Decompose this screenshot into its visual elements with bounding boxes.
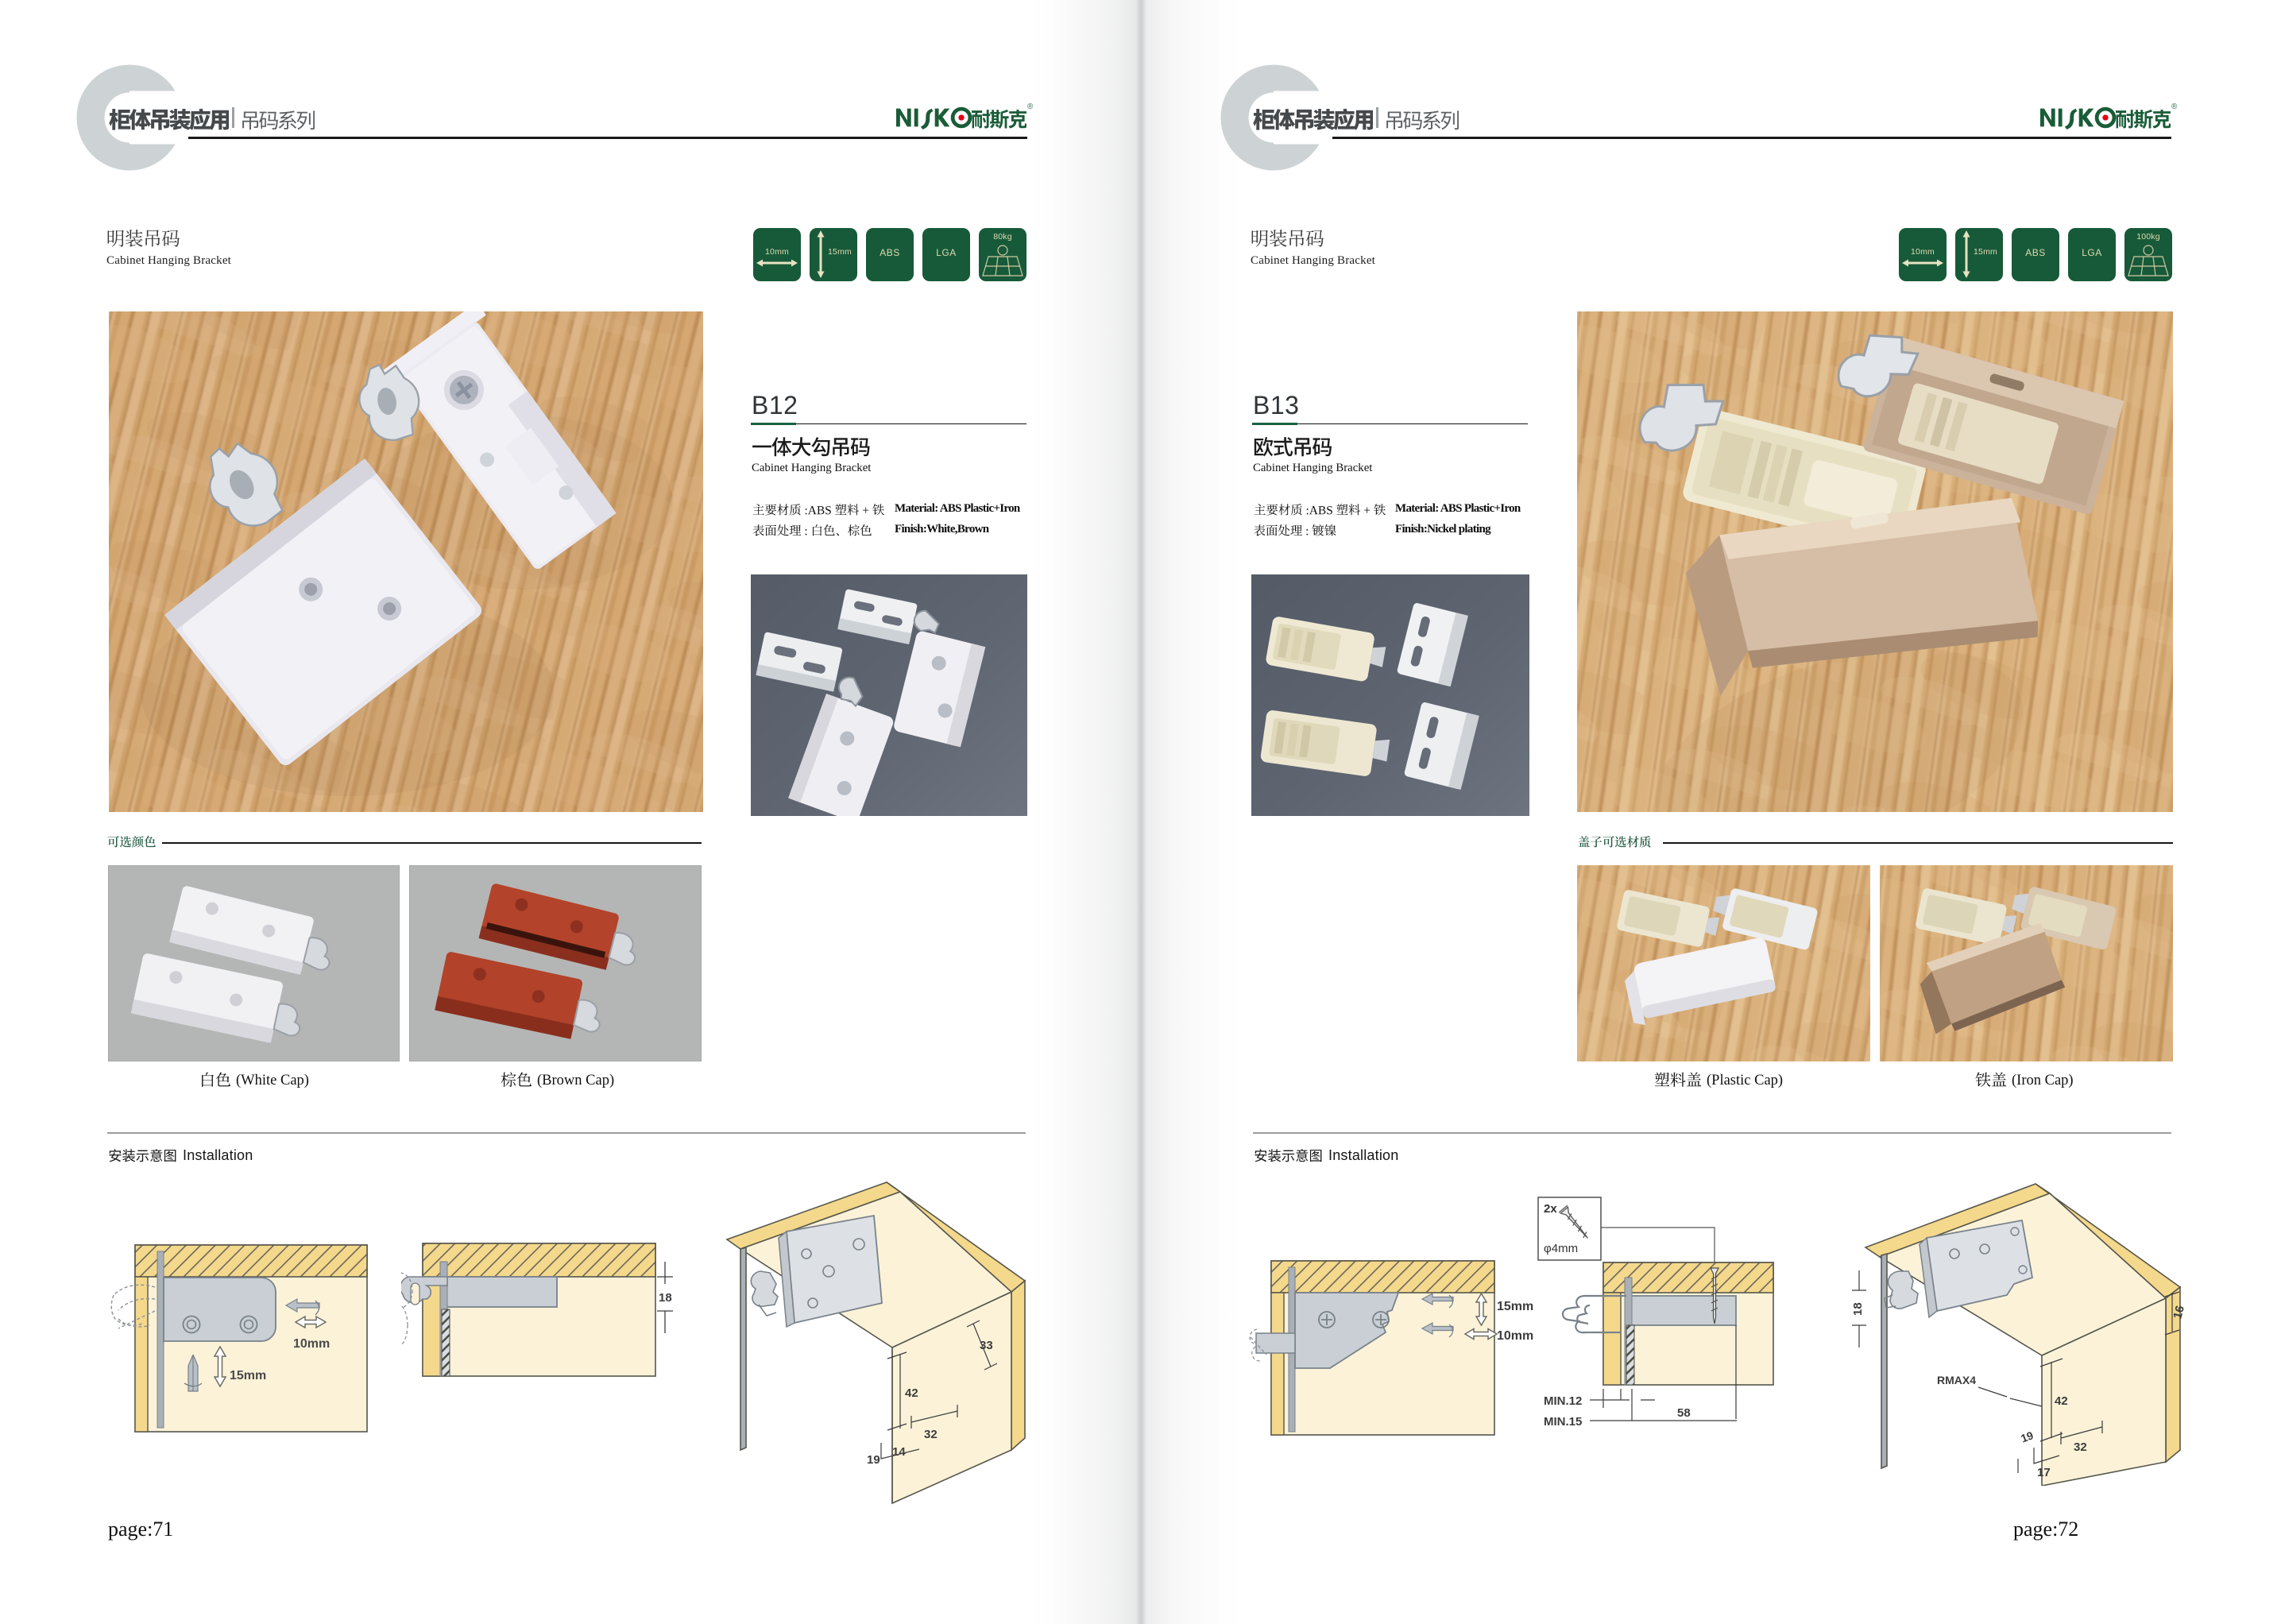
- svg-text:58: 58: [1677, 1406, 1691, 1420]
- svg-text:10mm: 10mm: [293, 1337, 330, 1351]
- svg-text:16: 16: [2171, 1304, 2187, 1320]
- svg-text:MIN.12: MIN.12: [1544, 1394, 1582, 1408]
- svg-text:42: 42: [2055, 1394, 2068, 1408]
- svg-text:14: 14: [892, 1445, 906, 1459]
- svg-text:RMAX4: RMAX4: [1937, 1374, 1976, 1386]
- svg-text:19: 19: [867, 1453, 880, 1467]
- svg-text:32: 32: [2074, 1440, 2087, 1454]
- svg-text:19: 19: [2019, 1429, 2035, 1444]
- svg-text:17: 17: [2037, 1466, 2051, 1479]
- svg-text:10mm: 10mm: [1497, 1329, 1533, 1343]
- svg-text:φ4mm: φ4mm: [1544, 1242, 1578, 1255]
- svg-text:15mm: 15mm: [1497, 1300, 1533, 1313]
- svg-text:42: 42: [905, 1386, 918, 1400]
- svg-text:32: 32: [924, 1428, 938, 1441]
- svg-text:33: 33: [980, 1339, 993, 1352]
- svg-text:MIN.15: MIN.15: [1544, 1415, 1582, 1429]
- svg-text:2x: 2x: [1544, 1202, 1557, 1216]
- svg-text:18: 18: [659, 1291, 672, 1305]
- svg-text:15mm: 15mm: [230, 1369, 266, 1382]
